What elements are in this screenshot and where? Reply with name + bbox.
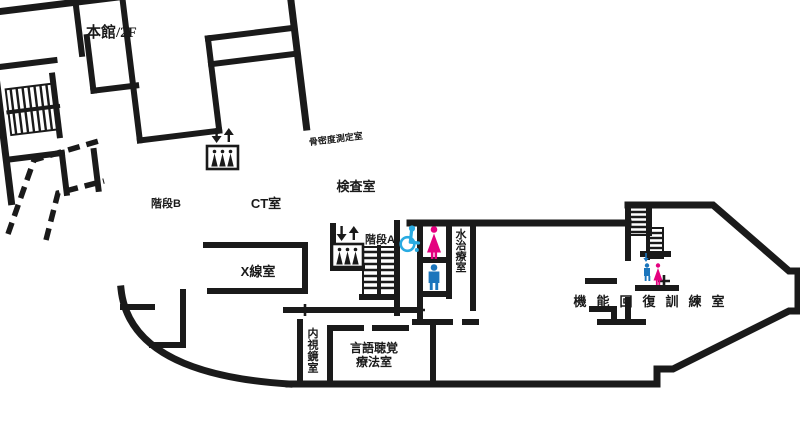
female-toilet-icon xyxy=(427,226,441,259)
room-label-endoscopy: 内視鏡室 xyxy=(307,326,319,375)
elevator-a-icon xyxy=(332,226,363,267)
floor-plan-page: 本館/2F 骨密度測定室 検査室 CT室 階段B X線室 階段A 水治療室 内視… xyxy=(0,0,800,424)
room-label-stairs-b: 階段B xyxy=(151,196,181,210)
dashed-connector-lower xyxy=(46,181,104,240)
room-label-bone-density: 骨密度測定室 xyxy=(308,130,363,148)
room-label-speech-line1: 言語聴覚 xyxy=(350,340,398,355)
left-wing-walls xyxy=(0,0,311,202)
room-label-stairs-a: 階段A xyxy=(365,232,395,246)
stairs-a-icon xyxy=(363,247,395,297)
floor-plan-svg: 本館/2F 骨密度測定室 検査室 CT室 階段B X線室 階段A 水治療室 内視… xyxy=(0,0,800,424)
wheelchair-icon xyxy=(401,225,419,252)
page-title: 本館/2F xyxy=(86,23,137,41)
room-label-xray: X線室 xyxy=(241,264,276,279)
room-label-examination: 検査室 xyxy=(336,179,375,194)
stairs-right-icon xyxy=(629,207,663,258)
male-toilet-icon xyxy=(429,264,440,290)
room-label-rehabilitation: 機能回復訓練室 xyxy=(573,294,734,309)
room-label-ct: CT室 xyxy=(251,196,281,211)
room-label-speech-line2: 療法室 xyxy=(356,354,392,369)
room-label-water-therapy: 水治療室 xyxy=(456,227,468,274)
